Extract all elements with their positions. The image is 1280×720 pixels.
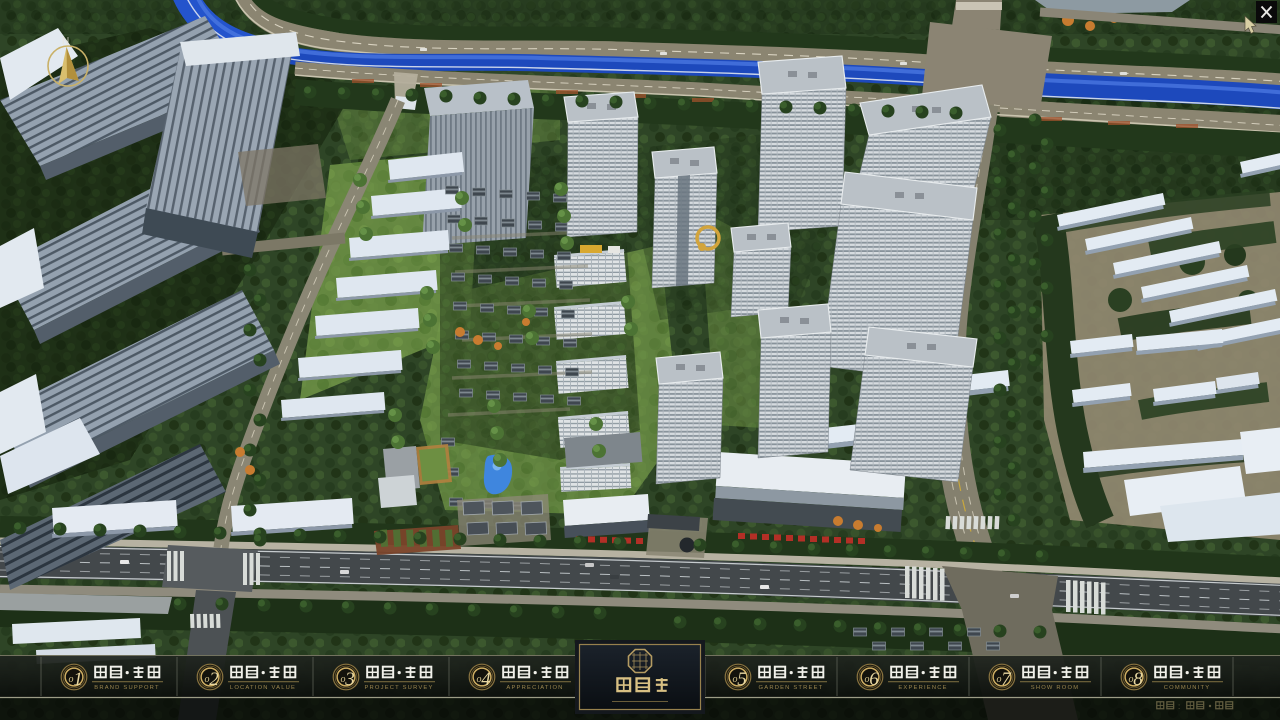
svg-text:6: 6 <box>869 669 879 690</box>
svg-text:SHOW ROOM: SHOW ROOM <box>1031 685 1079 691</box>
svg-text:8: 8 <box>1133 669 1143 690</box>
svg-text:5: 5 <box>737 669 747 690</box>
svg-text:APPRECIATION: APPRECIATION <box>506 685 563 691</box>
svg-text:BRAND SUPPORT: BRAND SUPPORT <box>94 685 159 691</box>
svg-text:7: 7 <box>1001 669 1012 690</box>
svg-text:1: 1 <box>73 669 83 690</box>
svg-text:3: 3 <box>344 669 355 690</box>
svg-text:COMMUNITY: COMMUNITY <box>1164 685 1211 691</box>
svg-text:4: 4 <box>481 669 491 690</box>
svg-text:EXPERIENCE: EXPERIENCE <box>898 685 947 691</box>
svg-text:2: 2 <box>209 669 219 690</box>
svg-text:LOCATION VALUE: LOCATION VALUE <box>230 685 296 691</box>
svg-text::: : <box>1178 702 1180 711</box>
svg-text:GARDEN STREET: GARDEN STREET <box>759 685 824 691</box>
svg-text:PROJECT SURVEY: PROJECT SURVEY <box>364 685 433 691</box>
